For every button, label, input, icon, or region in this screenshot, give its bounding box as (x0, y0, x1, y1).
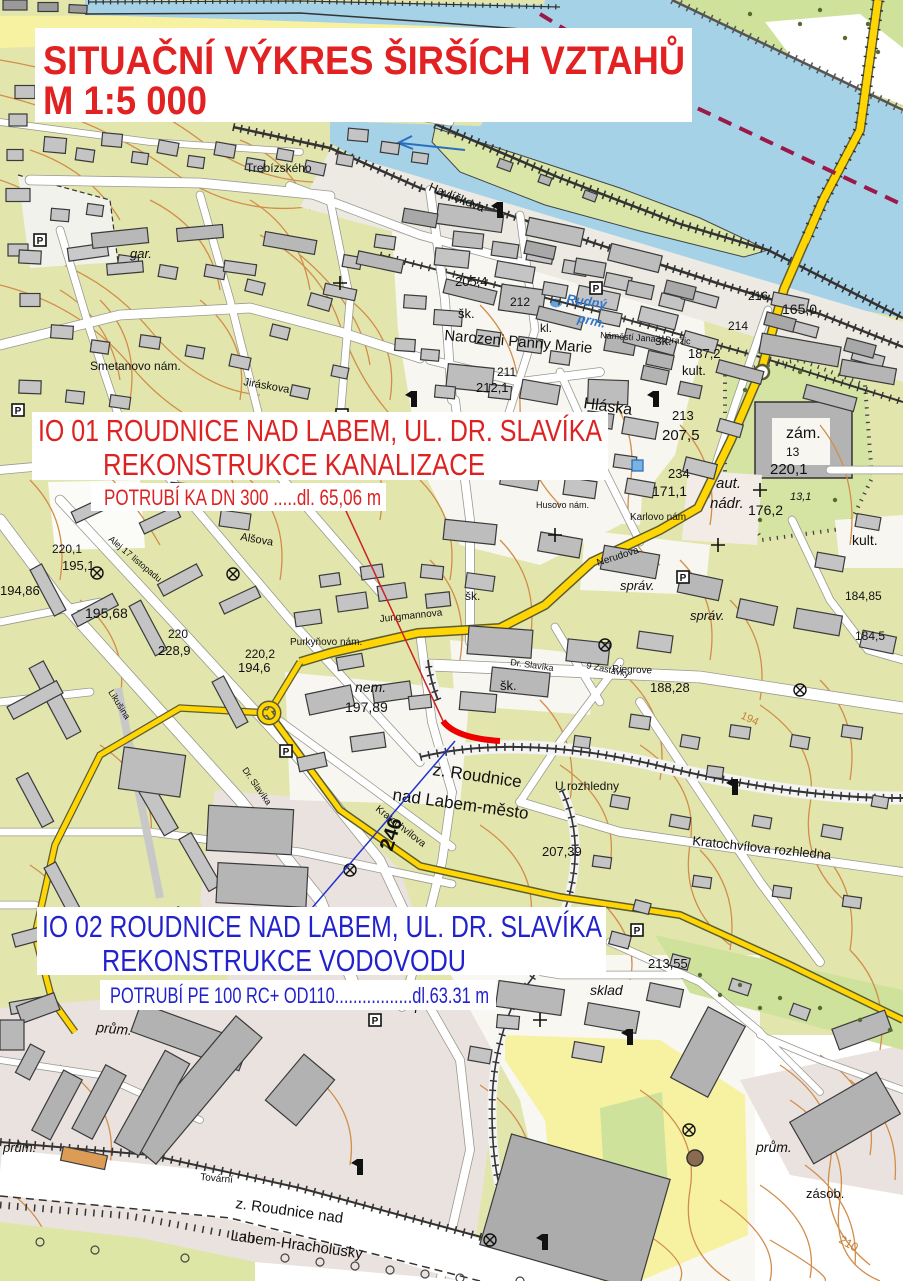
svg-text:220,2: 220,2 (245, 647, 275, 661)
svg-text:171,1: 171,1 (652, 483, 687, 499)
svg-text:P: P (15, 406, 22, 417)
svg-text:Karlovo nám: Karlovo nám (630, 512, 686, 523)
svg-text:228,9: 228,9 (158, 643, 191, 658)
svg-text:176,2: 176,2 (748, 502, 783, 518)
svg-text:P: P (37, 236, 44, 247)
svg-text:P: P (283, 747, 290, 758)
svg-text:211: 211 (497, 365, 516, 379)
svg-text:220: 220 (168, 627, 188, 641)
svg-text:Husovo nám.: Husovo nám. (536, 500, 589, 510)
svg-text:207,39: 207,39 (542, 844, 582, 859)
svg-text:prům.: prům. (755, 1139, 792, 1155)
svg-text:205,4: 205,4 (455, 274, 488, 289)
svg-text:kl.: kl. (540, 321, 552, 335)
svg-text:šk.: šk. (458, 306, 475, 321)
svg-text:zám.: zám. (786, 425, 821, 442)
svg-text:184,5: 184,5 (855, 629, 885, 643)
svg-text:aut.: aut. (716, 475, 741, 492)
svg-text:197,89: 197,89 (345, 699, 388, 715)
svg-text:195,1: 195,1 (62, 558, 95, 573)
svg-text:správ.: správ. (690, 608, 724, 623)
svg-text:13: 13 (786, 445, 800, 459)
svg-text:184,85: 184,85 (845, 589, 882, 603)
svg-text:šk.: šk. (500, 678, 517, 693)
svg-text:234: 234 (668, 466, 690, 481)
svg-text:U rozhledny: U rozhledny (555, 779, 619, 793)
svg-text:213: 213 (672, 408, 694, 423)
svg-text:187,2: 187,2 (688, 346, 721, 361)
svg-text:195,68: 195,68 (85, 605, 128, 621)
svg-text:nem.: nem. (355, 679, 386, 695)
svg-text:212,1: 212,1 (476, 380, 509, 395)
svg-text:Trebízského: Trebízského (246, 161, 312, 175)
svg-text:188,28: 188,28 (650, 680, 690, 695)
svg-text:220,1: 220,1 (52, 542, 82, 556)
svg-text:194,86: 194,86 (0, 583, 40, 598)
svg-text:212: 212 (510, 295, 530, 309)
svg-text:194,6: 194,6 (238, 660, 271, 675)
svg-text:REKONSTRUKCE KANALIZACE: REKONSTRUKCE KANALIZACE (103, 447, 485, 482)
svg-text:zásob.: zásob. (806, 1186, 844, 1201)
svg-text:šk.: šk. (465, 589, 480, 603)
svg-text:kult.: kult. (682, 363, 706, 378)
svg-text:P: P (593, 284, 600, 295)
svg-text:M 1:5 000: M 1:5 000 (43, 79, 207, 123)
svg-text:P: P (680, 573, 687, 584)
svg-text:214: 214 (728, 319, 748, 333)
svg-text:220,1: 220,1 (770, 461, 808, 478)
svg-text:P: P (634, 926, 641, 937)
svg-text:13,1: 13,1 (790, 491, 811, 503)
svg-text:213,55: 213,55 (648, 956, 688, 971)
svg-text:POTRUBÍ PE 100 RC+ OD110......: POTRUBÍ PE 100 RC+ OD110................… (110, 983, 489, 1008)
svg-text:nádr.: nádr. (710, 495, 744, 512)
svg-text:216: 216 (748, 289, 768, 303)
svg-text:prům.: prům. (95, 1019, 133, 1038)
svg-text:Smetanovo nám.: Smetanovo nám. (90, 359, 181, 373)
svg-text:prům.: prům. (2, 1140, 36, 1155)
svg-text:správ.: správ. (620, 578, 654, 593)
svg-text:207,5: 207,5 (662, 427, 700, 444)
svg-text:REKONSTRUKCE VODOVODU: REKONSTRUKCE VODOVODU (102, 943, 466, 978)
svg-text:sklad: sklad (590, 982, 624, 998)
svg-text:Purkyňovo nám.: Purkyňovo nám. (290, 637, 362, 648)
svg-text:POTRUBÍ KA DN 300 .....dl. 65: POTRUBÍ KA DN 300 .....dl. 65,06 m (104, 485, 381, 510)
svg-text:gar.: gar. (130, 246, 152, 261)
svg-text:IO 02 ROUDNICE NAD LABEM, UL.: IO 02 ROUDNICE NAD LABEM, UL. DR. SLAVÍK… (42, 909, 602, 944)
svg-text:165,0: 165,0 (782, 301, 817, 317)
svg-text:P: P (372, 1016, 379, 1027)
svg-text:kult.: kult. (852, 532, 878, 548)
svg-text:SITUAČNÍ VÝKRES ŠIRŠÍCH VZTAHŮ: SITUAČNÍ VÝKRES ŠIRŠÍCH VZTAHŮ (43, 34, 685, 83)
svg-text:IO 01 ROUDNICE NAD LABEM, UL.: IO 01 ROUDNICE NAD LABEM, UL. DR. SLAVÍK… (38, 413, 602, 448)
